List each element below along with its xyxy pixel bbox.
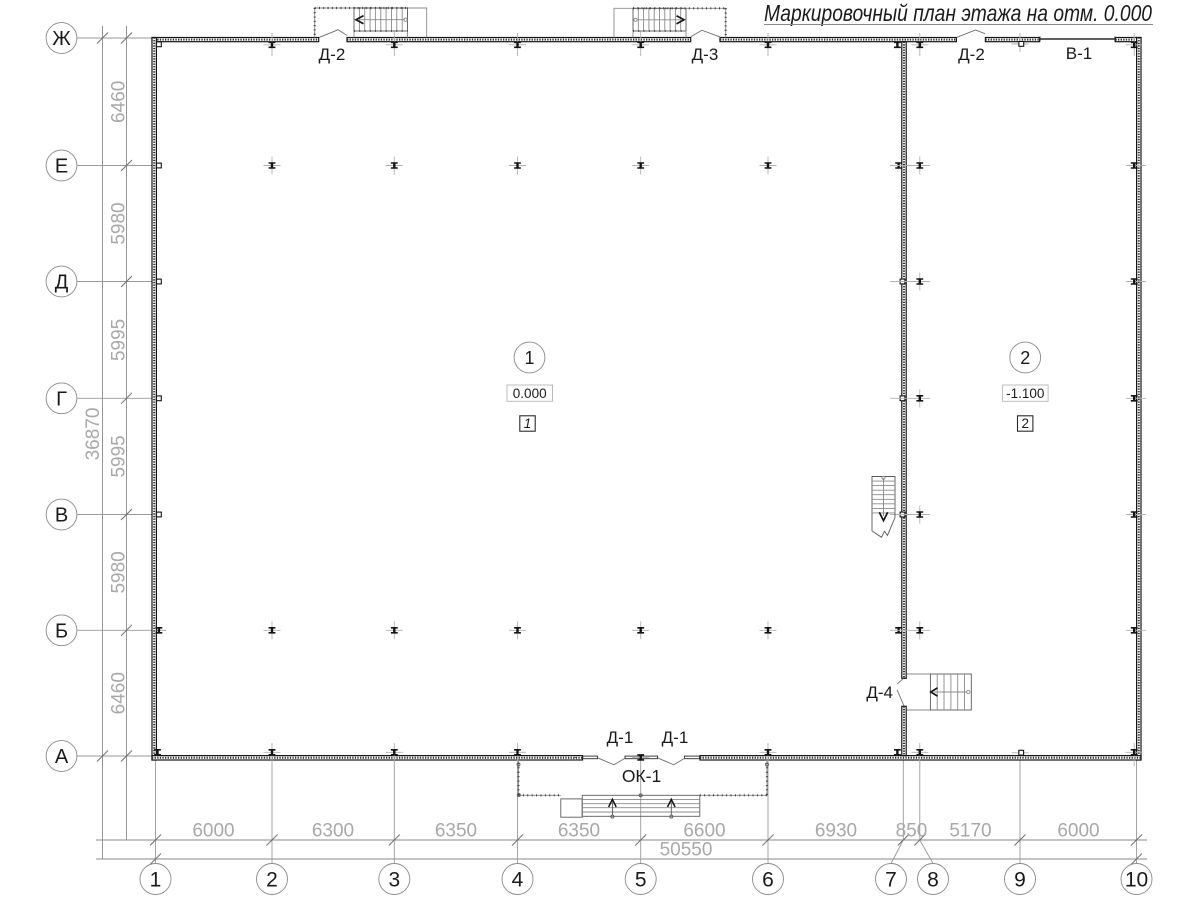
svg-text:Д-3: Д-3 xyxy=(692,45,719,64)
svg-text:6600: 6600 xyxy=(683,821,725,842)
svg-text:А: А xyxy=(55,746,69,768)
svg-text:-1.100: -1.100 xyxy=(1006,386,1044,401)
svg-text:ОК-1: ОК-1 xyxy=(622,766,661,786)
svg-text:5995: 5995 xyxy=(108,435,129,477)
svg-text:Г: Г xyxy=(56,389,67,411)
svg-text:5980: 5980 xyxy=(108,202,129,244)
svg-text:5170: 5170 xyxy=(949,821,991,842)
svg-text:1: 1 xyxy=(524,416,532,431)
svg-text:Д-1: Д-1 xyxy=(662,728,689,747)
svg-text:7: 7 xyxy=(885,869,897,892)
svg-text:Д-2: Д-2 xyxy=(958,45,985,64)
svg-text:Д: Д xyxy=(55,272,69,294)
svg-text:6000: 6000 xyxy=(1057,821,1099,842)
svg-text:8: 8 xyxy=(927,869,939,892)
svg-text:6000: 6000 xyxy=(192,821,234,842)
svg-text:Д-1: Д-1 xyxy=(607,728,634,747)
svg-text:3: 3 xyxy=(388,869,400,892)
svg-text:В-1: В-1 xyxy=(1066,44,1092,63)
svg-text:2: 2 xyxy=(1020,348,1030,368)
svg-text:2: 2 xyxy=(1021,416,1029,431)
svg-text:6300: 6300 xyxy=(312,821,354,842)
svg-text:Д-2: Д-2 xyxy=(319,45,346,64)
svg-text:36870: 36870 xyxy=(83,408,104,461)
svg-text:5: 5 xyxy=(635,869,647,892)
svg-text:5995: 5995 xyxy=(108,319,129,361)
svg-text:Б: Б xyxy=(55,621,68,643)
svg-text:850: 850 xyxy=(896,821,928,842)
svg-text:6460: 6460 xyxy=(108,672,129,714)
svg-text:6460: 6460 xyxy=(108,81,129,123)
svg-text:6350: 6350 xyxy=(435,821,477,842)
svg-text:6: 6 xyxy=(762,869,774,892)
svg-text:1: 1 xyxy=(150,869,162,892)
svg-text:50550: 50550 xyxy=(660,840,713,861)
svg-text:9: 9 xyxy=(1014,869,1026,892)
svg-text:Е: Е xyxy=(55,156,68,178)
svg-text:2: 2 xyxy=(266,869,278,892)
svg-text:10: 10 xyxy=(1125,869,1148,892)
svg-text:6930: 6930 xyxy=(815,821,857,842)
svg-text:1: 1 xyxy=(524,348,534,368)
svg-text:Ж: Ж xyxy=(52,28,71,50)
svg-text:4: 4 xyxy=(512,869,524,892)
svg-text:В: В xyxy=(55,505,68,527)
svg-text:Маркировочный план этажа на от: Маркировочный план этажа на отм. 0.000 xyxy=(764,0,1152,26)
svg-text:0.000: 0.000 xyxy=(513,386,547,401)
svg-text:5980: 5980 xyxy=(108,551,129,593)
svg-text:6350: 6350 xyxy=(558,821,600,842)
svg-text:Д-4: Д-4 xyxy=(866,683,893,702)
